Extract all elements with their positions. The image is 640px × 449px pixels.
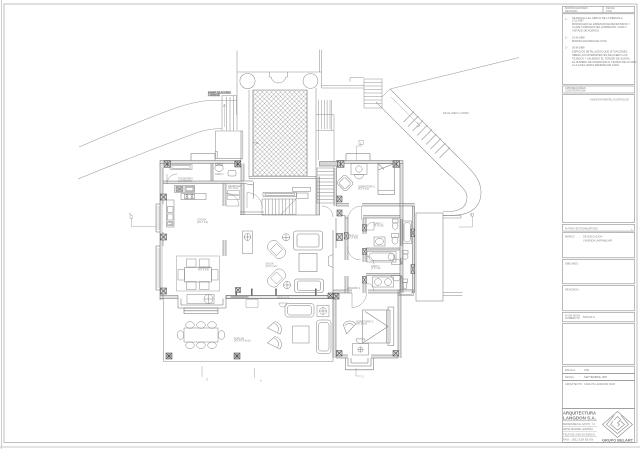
- svg-text:EL NUMERO DE ASCENSOR AL TEJAD: EL NUMERO DE ASCENSOR AL TEJADO DE ALTUR…: [572, 60, 637, 64]
- svg-text:DE EJECUCION: DE EJECUCION: [583, 235, 602, 239]
- svg-text:CLAVE COMPLETA DEL HORMIGON. C: CLAVE COMPLETA DEL HORMIGON. CARA Y: [572, 25, 627, 29]
- svg-text:(XX.X m2): (XX.X m2): [356, 323, 367, 326]
- svg-text:(XX.XX.X.Xm2): (XX.XX.X.Xm2): [234, 340, 251, 343]
- svg-text:CLIENTE/FECHA: CLIENTE/FECHA: [565, 88, 586, 92]
- svg-text:VISTAZO DE ACEROS.: VISTAZO DE ACEROS.: [572, 29, 600, 33]
- svg-text:(XX.X m2): (XX.X m2): [266, 265, 277, 268]
- svg-text:A MODIFICAR DURANTE LA CONSTRU: A MODIFICAR DURANTE LA CONSTRUCCION: [590, 97, 629, 101]
- svg-text:POR: POR: [606, 9, 612, 13]
- svg-text:ESCALA: ESCALA: [565, 368, 576, 372]
- svg-text:3 -: 3 -: [565, 46, 568, 50]
- svg-text:(XX.X m2): (XX.X m2): [198, 269, 209, 272]
- svg-text:TEJADOS Y SALIENDO EL TERCER D: TEJADOS Y SALIENDO EL TERCER DE SILERA.: [572, 56, 631, 60]
- svg-text:0461/87/328: 0461/87/328: [583, 227, 598, 231]
- svg-text:(XX.X m2): (XX.X m2): [197, 221, 208, 224]
- svg-text:MODIFICACIONES DE COTA.: MODIFICACIONES DE COTA.: [572, 39, 608, 43]
- svg-text:2-11-1987: 2-11-1987: [572, 18, 584, 22]
- svg-text:GRUPO BELART: GRUPO BELART: [602, 439, 634, 443]
- svg-text:FAX : (91) 319 65 09: FAX : (91) 319 65 09: [563, 437, 594, 441]
- svg-text:2 -: 2 -: [565, 35, 568, 39]
- svg-text:TELF.(91) 000 00 00/00 0: TELF.(91) 000 00 00/00 0: [563, 432, 596, 436]
- svg-text:ABIER LOS INTERMITENTES DE ACE: ABIER LOS INTERMITENTES DE ACERO LOS: [572, 53, 628, 57]
- svg-text:ESPACIOS DETALLADOS QUE SITUAC: ESPACIOS DETALLADOS QUE SITUACIONES: [572, 50, 628, 54]
- svg-text:FERNANDEZ EL SANTO, 7-2: FERNANDEZ EL SANTO, 7-2: [563, 422, 596, 426]
- svg-text:ARMARIO 2: ARMARIO 2: [347, 287, 361, 290]
- svg-text:1/50: 1/50: [584, 368, 590, 372]
- svg-text:1 -: 1 -: [565, 17, 568, 21]
- svg-text:(XX.Xm2): (XX.Xm2): [228, 187, 239, 190]
- svg-text:Nº PROYECTO: Nº PROYECTO: [565, 227, 583, 231]
- svg-text:MESA AUX: MESA AUX: [277, 296, 289, 299]
- svg-text:CARLOS LANGDON RUIZ: CARLOS LANGDON RUIZ: [584, 382, 615, 386]
- svg-text:504/100 A: 504/100 A: [583, 315, 595, 319]
- svg-text:FECHA: FECHA: [565, 375, 574, 379]
- svg-text:ASEO 1: ASEO 1: [215, 173, 224, 176]
- svg-text:C: C: [360, 142, 362, 145]
- svg-text:DIBUJADO: DIBUJADO: [565, 261, 578, 265]
- svg-text:15-M-1988: 15-M-1988: [572, 35, 585, 39]
- svg-text:SEPTIEMBRE 1987: SEPTIEMBRE 1987: [584, 375, 608, 379]
- svg-text:REVISION: REVISION: [565, 9, 578, 13]
- svg-text:C: C: [362, 376, 364, 379]
- svg-text:(X.X m2): (X.X m2): [371, 267, 381, 270]
- svg-text:A GARAJE: A GARAJE: [208, 94, 220, 97]
- svg-text:(X.X m2): (X.X m2): [374, 225, 384, 228]
- svg-text:REVISADO: REVISADO: [565, 288, 578, 292]
- svg-text:NUMERO Nº: NUMERO Nº: [565, 316, 580, 320]
- svg-text:(X.X m2): (X.X m2): [349, 237, 359, 240]
- svg-text:MODIFICADO EL ESPESOR DE REVES: MODIFICADO EL ESPESOR DE REVESTIDOS Y: [572, 22, 630, 26]
- svg-text:D: D: [207, 379, 209, 382]
- svg-text:LANGDON S.A.: LANGDON S.A.: [563, 415, 596, 420]
- svg-text:30-M-1988: 30-M-1988: [572, 46, 585, 50]
- svg-text:VIVIENDA UNIFAMILIAR: VIVIENDA UNIFAMILIAR: [583, 239, 612, 243]
- svg-text:MARCO: MARCO: [565, 235, 575, 239]
- svg-text:(XX.X m2): (XX.X m2): [358, 188, 369, 191]
- svg-text:ESCALONES A JARDIN: ESCALONES A JARDIN: [443, 112, 469, 115]
- svg-text:A LA CASA HASTA DEFENSA DE CAR: A LA CASA HASTA DEFENSA DE CARA.: [572, 63, 620, 67]
- svg-text:(LAVADERO): (LAVADERO): [178, 180, 192, 183]
